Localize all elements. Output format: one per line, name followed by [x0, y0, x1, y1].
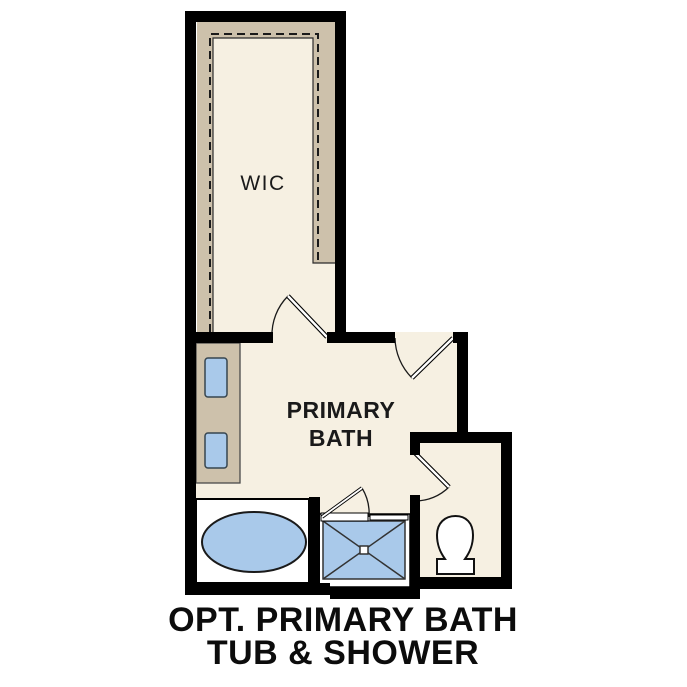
- caption: OPT. PRIMARY BATH TUB & SHOWER: [168, 604, 518, 670]
- wall-wc-right: [501, 432, 512, 589]
- caption-line2: TUB & SHOWER: [168, 637, 518, 670]
- wall-wc-left-stub: [410, 443, 420, 455]
- wall-wc-left: [410, 495, 420, 588]
- wall-bath-left: [185, 343, 196, 595]
- primary-bath-label: PRIMARY BATH: [287, 396, 396, 452]
- wall-wic-left: [185, 11, 196, 343]
- vanity: [196, 343, 240, 483]
- wall-bottom-middle: [330, 587, 420, 599]
- wall-bottom-left: [185, 583, 330, 595]
- wic-doorway-gap: [273, 332, 327, 343]
- floor-plan-drawing: [0, 0, 687, 687]
- wall-tub-shower-divider: [309, 497, 320, 595]
- wall-bath-top-middle: [327, 332, 395, 343]
- toilet: [437, 516, 474, 574]
- primary-bath-label-line1: PRIMARY: [287, 396, 396, 424]
- wc-doorway-gap: [410, 455, 420, 495]
- wic-label: WIC: [240, 172, 285, 196]
- tub-basin: [202, 512, 306, 572]
- shower-glass-panel: [370, 515, 408, 520]
- sink-2: [205, 433, 227, 468]
- wall-wc-top: [410, 432, 512, 443]
- entry-doorway-gap: [395, 332, 453, 343]
- bathtub: [196, 499, 309, 583]
- floor-plan: WIC PRIMARY BATH OPT. PRIMARY BATH TUB &…: [0, 0, 687, 687]
- wall-wic-top: [185, 11, 346, 22]
- wall-wic-bottom-left: [185, 332, 273, 343]
- wall-bath-right: [457, 332, 468, 443]
- caption-line1: OPT. PRIMARY BATH: [168, 604, 518, 637]
- sink-1: [205, 358, 227, 397]
- shower-drain: [360, 546, 368, 554]
- wall-wc-bottom: [410, 577, 512, 589]
- wall-wic-right: [335, 11, 346, 343]
- primary-bath-label-line2: BATH: [287, 424, 396, 452]
